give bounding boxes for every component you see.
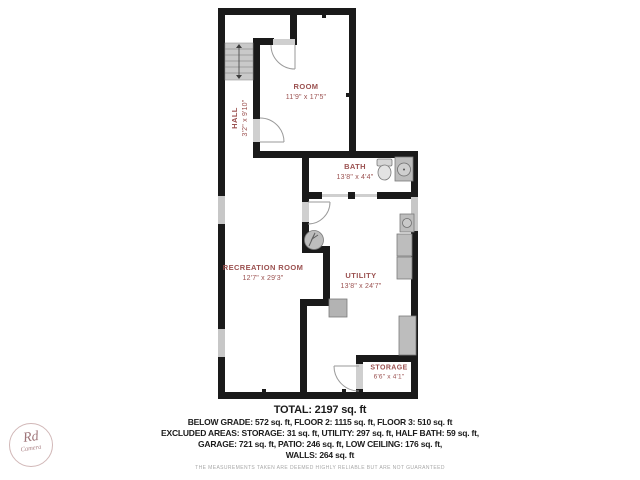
toilet-icon <box>377 159 392 180</box>
area-line: WALLS: 264 sq. ft <box>0 450 640 461</box>
fixtures <box>305 157 417 355</box>
room-dimensions: 6'6" x 4'1" <box>370 374 407 382</box>
floor-plan-page: ROOM 11'9" x 17'5" HALL 3'2" x 9'10" BAT… <box>0 0 640 480</box>
room-dimensions: 13'8" x 24'7" <box>341 282 382 291</box>
water-heater-icon <box>399 316 416 355</box>
room-name: STORAGE <box>370 364 407 373</box>
area-line: GARAGE: 721 sq. ft, PATIO: 246 sq. ft, L… <box>0 439 640 450</box>
room-label-utility: UTILITY 13'8" x 24'7" <box>341 271 382 291</box>
room-name: UTILITY <box>341 271 382 281</box>
room-label-hall: HALL 3'2" x 9'10" <box>230 100 250 137</box>
room-dimensions: 11'9" x 17'5" <box>286 93 326 102</box>
room-name: RECREATION ROOM <box>223 263 303 273</box>
measurement-disclaimer: THE MEASUREMENTS TAKEN ARE DEEMED HIGHLY… <box>0 465 640 471</box>
room-label-bath: BATH 13'8" x 4'4" <box>337 162 374 182</box>
room-dimensions: 3'2" x 9'10" <box>241 100 250 137</box>
interior-walls <box>253 15 418 399</box>
floor-drain-icon <box>305 231 324 250</box>
photographer-logo: Rd Camera <box>9 423 53 467</box>
room-dimensions: 13'8" x 4'4" <box>337 173 374 182</box>
window-icon <box>218 329 225 357</box>
room-name: BATH <box>337 162 374 172</box>
bath-sink-icon <box>395 157 413 181</box>
door-arc-landing <box>271 45 295 69</box>
door-arc-utility <box>308 202 330 224</box>
laundry-sink-icon <box>400 214 414 232</box>
total-area: TOTAL: 2197 sq. ft <box>0 404 640 416</box>
washer-icon <box>397 234 412 256</box>
room-dimensions: 12'7" x 29'3" <box>223 274 303 283</box>
staircase-icon <box>225 43 253 80</box>
furnace-icon <box>329 299 347 317</box>
area-summary: TOTAL: 2197 sq. ft BELOW GRADE: 572 sq. … <box>0 404 640 471</box>
dryer-icon <box>397 257 412 279</box>
room-name: ROOM <box>286 82 326 92</box>
area-line: EXCLUDED AREAS: STORAGE: 31 sq. ft, UTIL… <box>0 428 640 439</box>
room-label-room: ROOM 11'9" x 17'5" <box>286 82 326 102</box>
door-arc-storage <box>334 366 359 391</box>
window-icon <box>218 196 225 224</box>
room-name: HALL <box>230 100 240 137</box>
area-line: BELOW GRADE: 572 sq. ft, FLOOR 2: 1115 s… <box>0 417 640 428</box>
door-arc-hall <box>260 118 284 142</box>
room-label-recreation-room: RECREATION ROOM 12'7" x 29'3" <box>223 263 303 283</box>
room-label-storage: STORAGE 6'6" x 4'1" <box>370 364 407 383</box>
